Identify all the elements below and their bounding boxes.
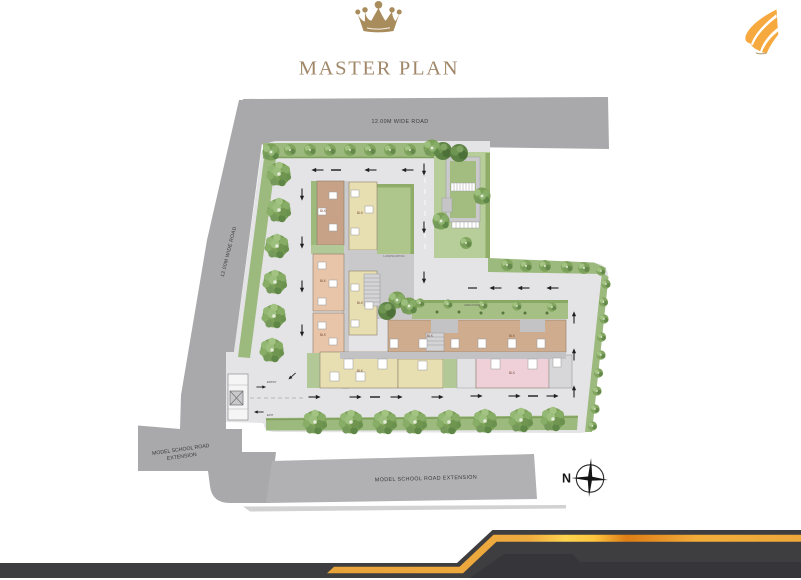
- svg-text:BLK: BLK: [357, 211, 364, 215]
- svg-text:ENTRY: ENTRY: [267, 380, 277, 384]
- svg-text:MASTER PLAN: MASTER PLAN: [299, 58, 460, 80]
- svg-text:BLK: BLK: [509, 371, 516, 375]
- svg-text:AMENITIES: AMENITIES: [464, 303, 480, 307]
- svg-text:BLK: BLK: [320, 333, 327, 337]
- svg-text:BLK: BLK: [427, 334, 434, 338]
- svg-text:EXIT: EXIT: [267, 413, 274, 417]
- svg-text:BLK: BLK: [357, 301, 364, 305]
- svg-text:LANDSCAPING: LANDSCAPING: [383, 254, 405, 258]
- svg-text:BLK: BLK: [320, 209, 327, 213]
- svg-text:BLK: BLK: [509, 334, 516, 338]
- svg-text:12.00M WIDE ROAD: 12.00M WIDE ROAD: [371, 119, 428, 125]
- svg-text:N: N: [562, 472, 571, 486]
- svg-text:BLK: BLK: [357, 369, 364, 373]
- svg-text:BLK: BLK: [320, 279, 327, 283]
